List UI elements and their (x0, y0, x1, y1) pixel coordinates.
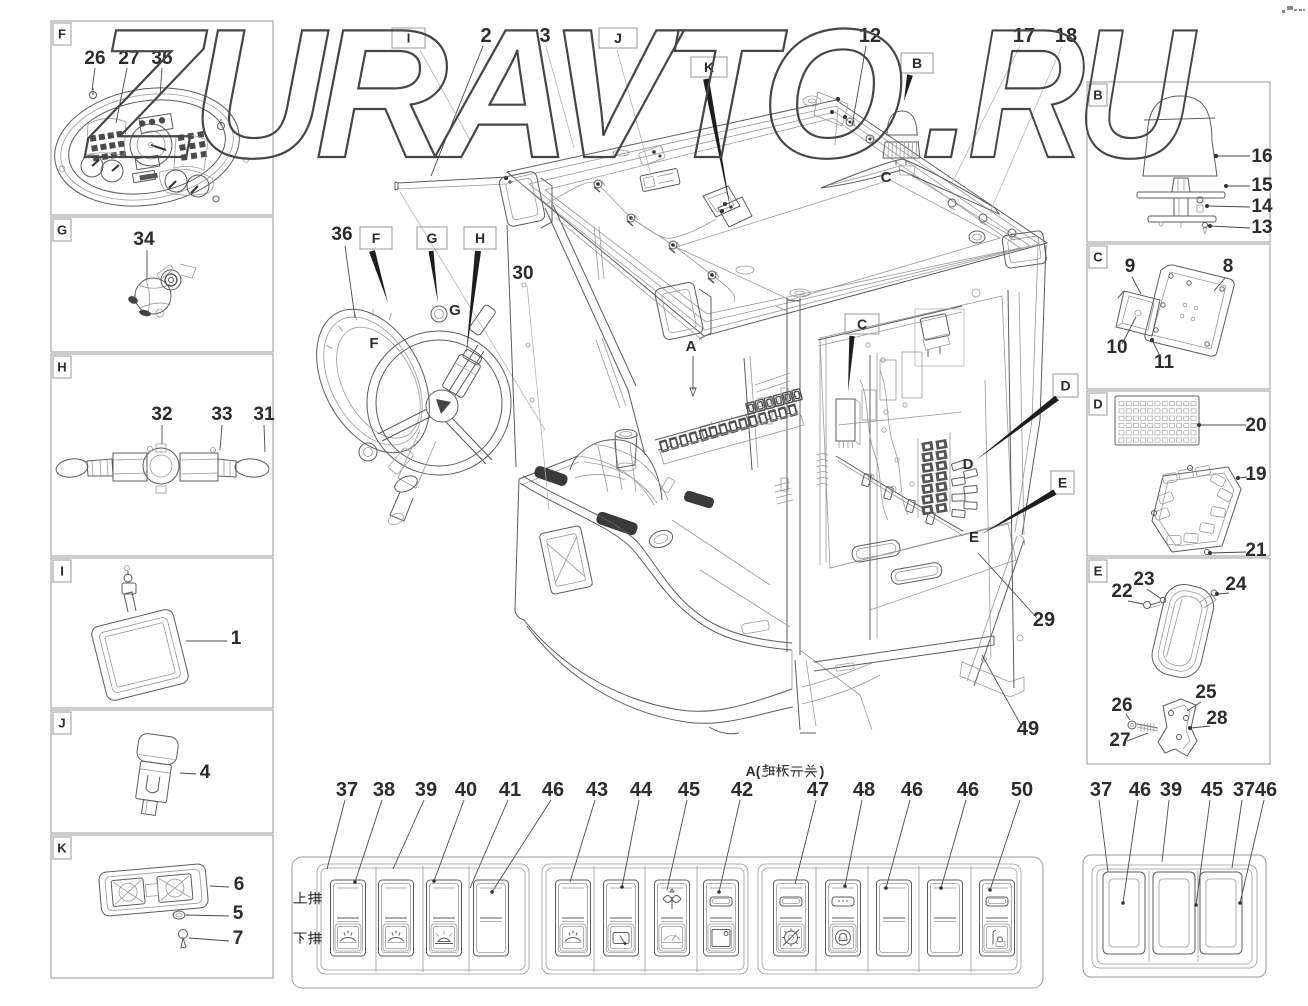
svg-text:7: 7 (233, 928, 244, 949)
svg-text:45: 45 (1201, 779, 1223, 801)
svg-text:24: 24 (1225, 574, 1247, 595)
svg-text:6: 6 (234, 874, 245, 895)
svg-text:): ) (820, 763, 825, 779)
svg-text:F: F (369, 335, 378, 352)
svg-text:45: 45 (678, 779, 700, 801)
svg-text:D: D (963, 456, 974, 473)
svg-text:.: . (921, 0, 972, 196)
svg-text:39: 39 (415, 779, 437, 801)
svg-text:44: 44 (630, 779, 653, 801)
svg-text:16: 16 (1251, 146, 1272, 167)
svg-text:D: D (1060, 378, 1070, 394)
svg-text:D: D (1093, 397, 1102, 412)
svg-text:C: C (857, 316, 867, 332)
svg-text:40: 40 (455, 779, 477, 801)
svg-text:14: 14 (1251, 196, 1273, 217)
svg-text:46: 46 (542, 779, 564, 801)
svg-text:29: 29 (1033, 609, 1055, 631)
svg-text:26: 26 (1111, 695, 1132, 716)
svg-text:13: 13 (1251, 217, 1272, 238)
svg-text:E: E (1094, 564, 1103, 579)
svg-text:38: 38 (373, 779, 395, 801)
svg-text:42: 42 (731, 779, 753, 801)
svg-text:G: G (449, 302, 461, 319)
svg-text:5: 5 (233, 903, 244, 924)
svg-text:4: 4 (200, 762, 211, 783)
svg-text:J: J (58, 716, 65, 731)
svg-text:ZURAVTO: ZURAVTO (84, 0, 902, 196)
svg-text:33: 33 (211, 404, 232, 425)
svg-text:43: 43 (586, 779, 608, 801)
svg-text:C: C (1093, 250, 1103, 265)
svg-text:34: 34 (133, 229, 155, 250)
svg-text:G: G (427, 230, 438, 246)
svg-text:20: 20 (1245, 415, 1266, 436)
svg-text:11: 11 (1154, 352, 1175, 373)
svg-text:A(: A( (746, 763, 761, 779)
svg-text:E: E (969, 529, 979, 546)
svg-text:37: 37 (1090, 779, 1112, 801)
svg-text:H: H (57, 360, 66, 375)
svg-text:1: 1 (231, 628, 242, 649)
svg-text:22: 22 (1111, 581, 1132, 602)
svg-text:46: 46 (1255, 779, 1277, 801)
svg-text:48: 48 (853, 779, 875, 801)
svg-text:E: E (1058, 475, 1067, 491)
svg-text:49: 49 (1017, 718, 1039, 740)
svg-text:19: 19 (1245, 464, 1266, 485)
svg-text:I: I (60, 564, 64, 579)
svg-text:37: 37 (1233, 779, 1255, 801)
svg-text:32: 32 (151, 404, 172, 425)
svg-text:30: 30 (512, 263, 533, 284)
svg-text:15: 15 (1251, 175, 1273, 196)
svg-text:46: 46 (901, 779, 923, 801)
svg-text:23: 23 (1133, 569, 1154, 590)
svg-text:F: F (58, 27, 66, 42)
svg-text:47: 47 (807, 779, 829, 801)
svg-text:G: G (57, 223, 67, 238)
svg-text:K: K (57, 841, 67, 856)
svg-text:46: 46 (957, 779, 979, 801)
svg-text:A: A (686, 338, 697, 355)
svg-text:9: 9 (1125, 256, 1136, 277)
svg-text:RU: RU (968, 0, 1197, 196)
svg-text:8: 8 (1223, 256, 1234, 277)
svg-text:37: 37 (336, 779, 358, 801)
svg-text:50: 50 (1011, 779, 1033, 801)
svg-text:21: 21 (1245, 540, 1267, 561)
svg-text:25: 25 (1195, 682, 1217, 703)
svg-text:39: 39 (1160, 779, 1182, 801)
svg-text:31: 31 (253, 404, 275, 425)
svg-text:46: 46 (1129, 779, 1151, 801)
svg-text:F: F (372, 230, 381, 246)
svg-text:41: 41 (499, 779, 521, 801)
svg-text:H: H (475, 230, 485, 246)
svg-text:36: 36 (331, 224, 352, 245)
